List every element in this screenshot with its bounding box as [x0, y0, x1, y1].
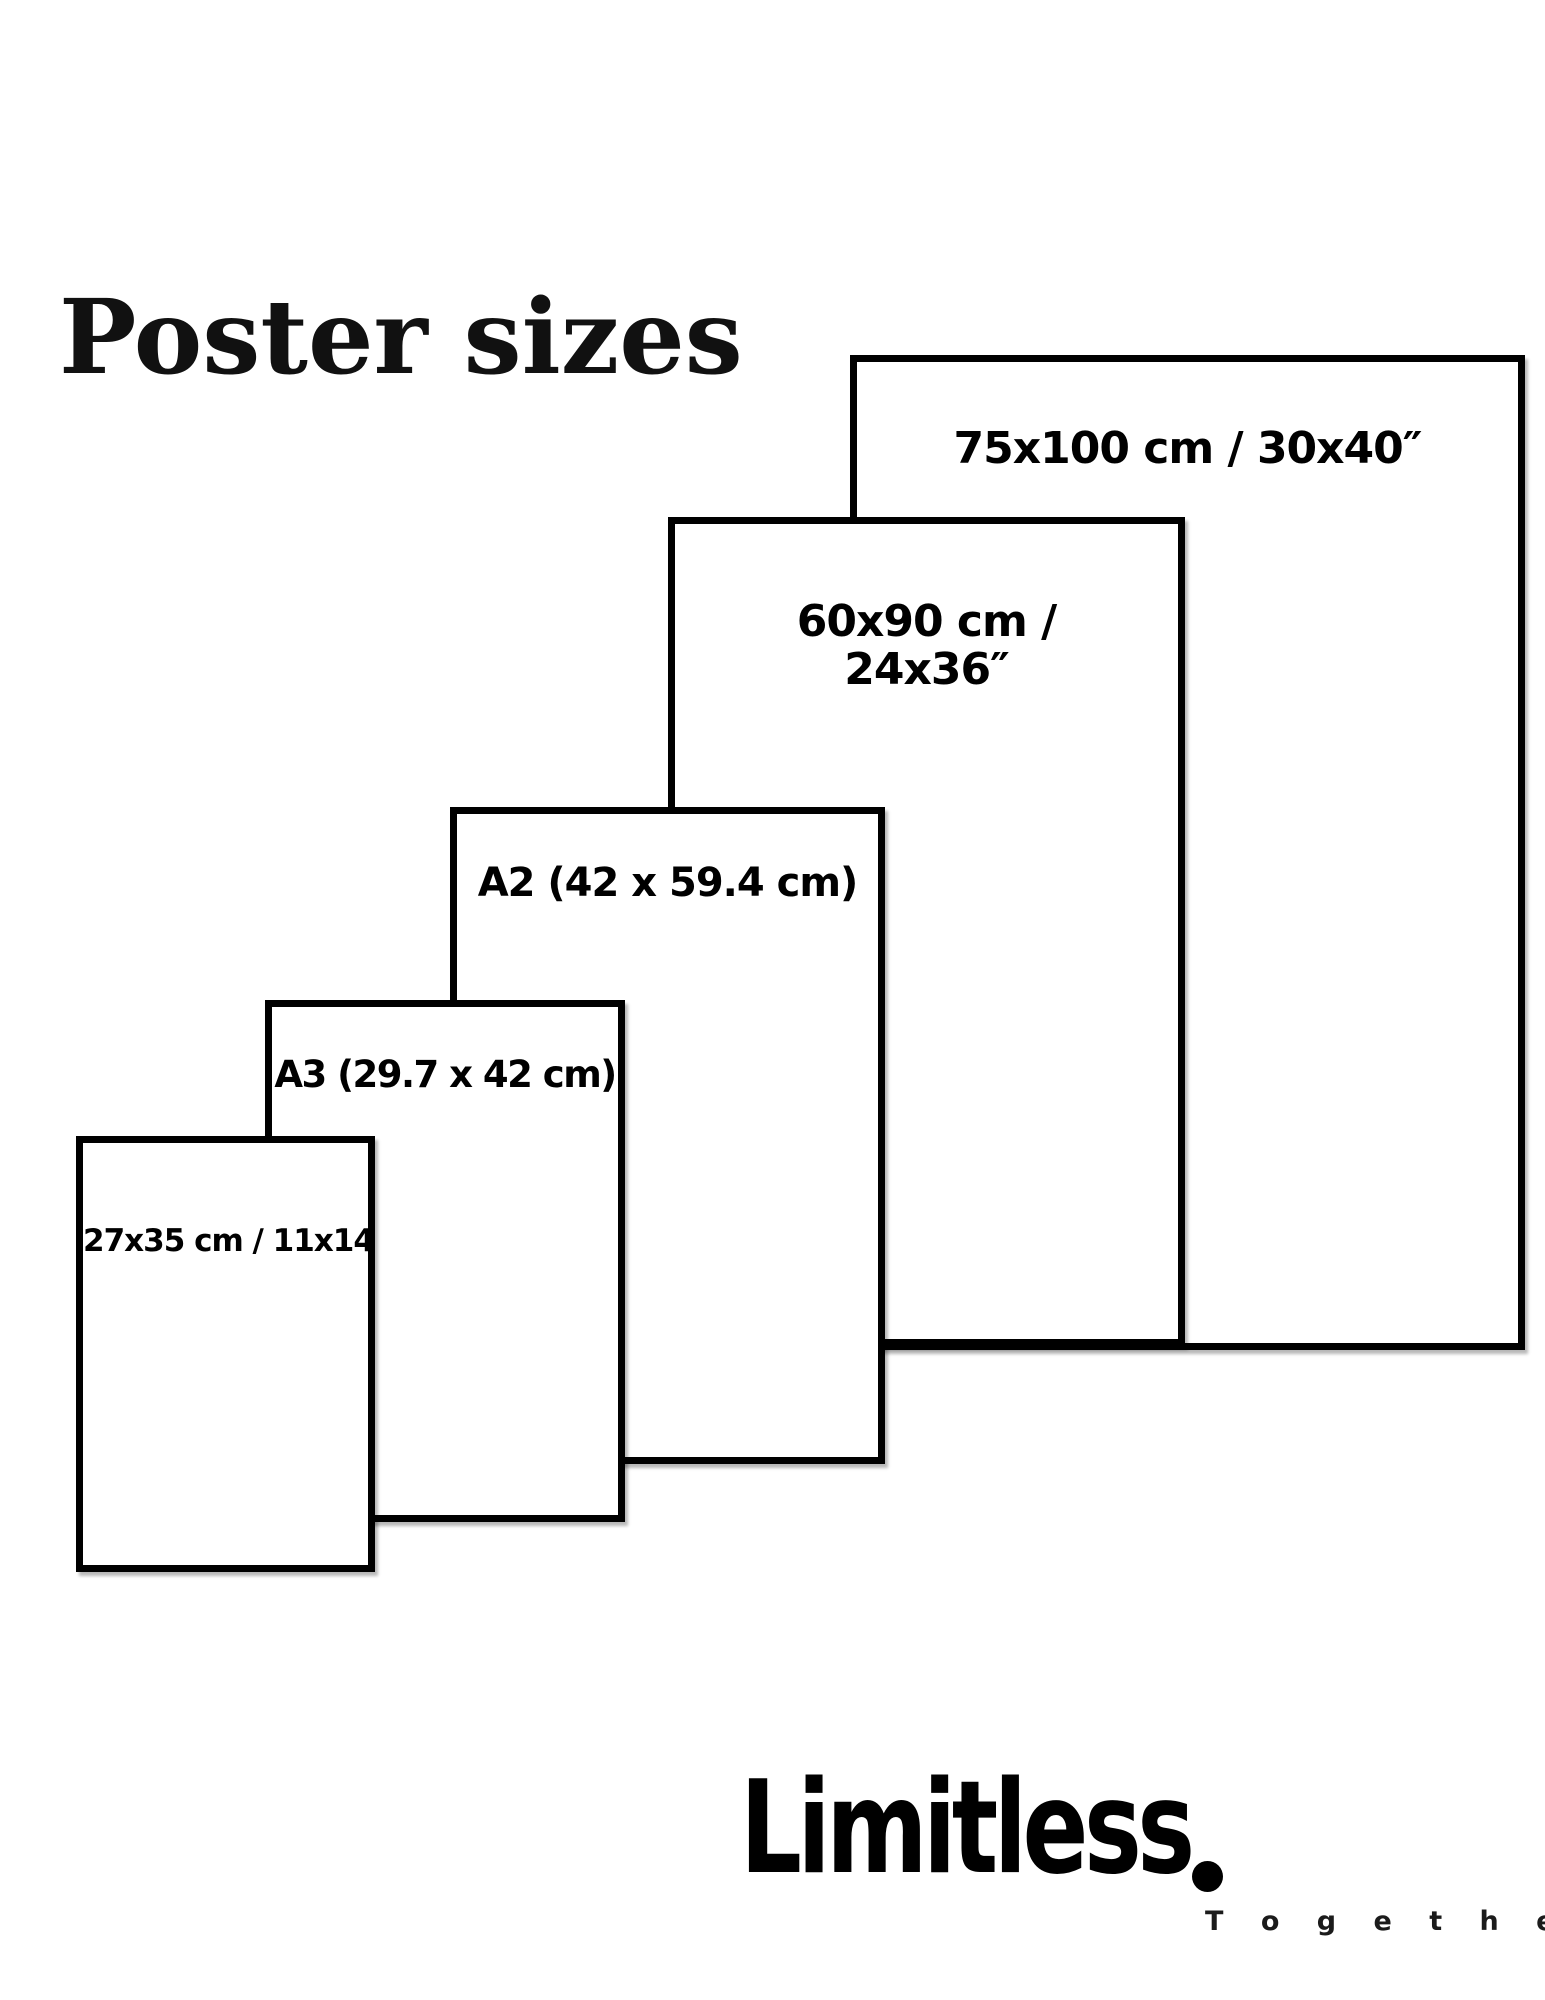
poster-label-60x90-line2: 24x36″ — [675, 646, 1178, 694]
poster-sizes-infographic: Poster sizes 75x100 cm / 30x40″ 60x90 cm… — [0, 0, 1545, 2000]
poster-label-a2: A2 (42 x 59.4 cm) — [457, 860, 878, 906]
poster-label-a3: A3 (29.7 x 42 cm) — [272, 1053, 618, 1096]
brand-tagline: T o g e t h e r — [1205, 1906, 1545, 1937]
brand-logo: Limitless — [740, 1765, 1333, 1915]
poster-label-75x100: 75x100 cm / 30x40″ — [857, 423, 1518, 474]
poster-rect-27x35: 27x35 cm / 11x14 — [76, 1136, 375, 1572]
page-title: Poster sizes — [59, 286, 743, 389]
brand-wordmark: Limitless — [740, 1765, 1191, 1893]
brand-period-dot — [1192, 1861, 1223, 1892]
poster-label-60x90: 60x90 cm / 24x36″ — [675, 598, 1178, 694]
poster-label-27x35: 27x35 cm / 11x14 — [83, 1223, 368, 1259]
poster-label-60x90-line1: 60x90 cm / — [675, 598, 1178, 646]
